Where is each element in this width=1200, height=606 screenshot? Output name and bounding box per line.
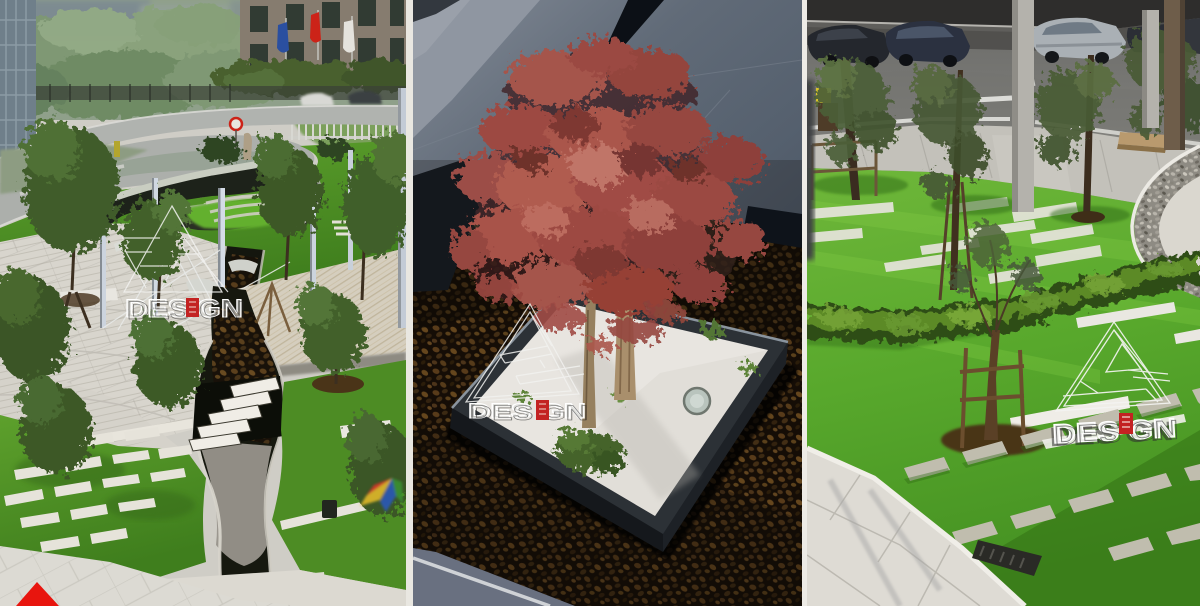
svg-text:DES GN: DES GN (470, 402, 588, 425)
